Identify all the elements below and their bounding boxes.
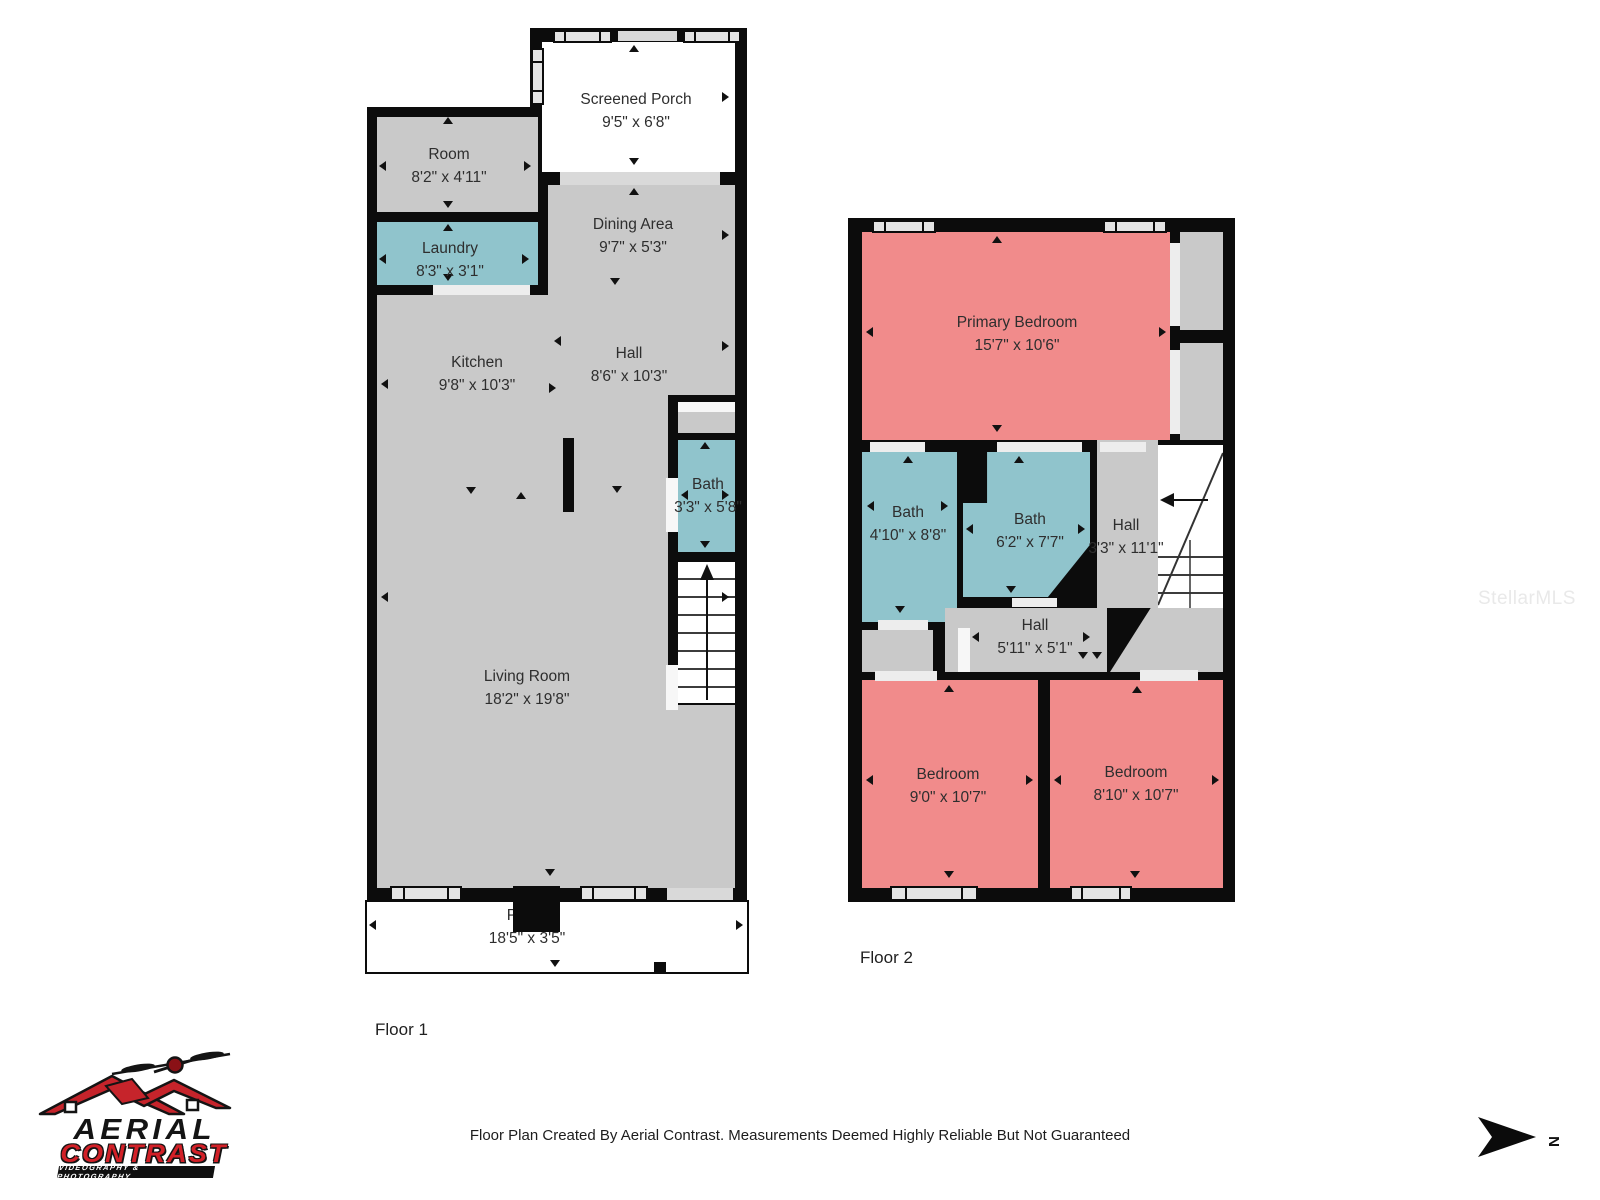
dimension-arrow-icon (549, 383, 556, 393)
door-opening-bedroom-right (1140, 670, 1198, 681)
dimension-arrow-icon (516, 492, 526, 499)
dimension-arrow-icon (722, 341, 729, 351)
dimension-arrow-icon (722, 92, 729, 102)
room-label-hall-lower: Hall 5'11" x 5'1" (997, 614, 1072, 661)
room-label-room: Room 8'2" x 4'11" (411, 143, 486, 190)
logo-tagline-bar: VIDEOGRAPHY & PHOTOGRAPHY (57, 1166, 215, 1178)
window (580, 886, 648, 901)
dimension-arrow-icon (629, 45, 639, 52)
dimension-arrow-icon (524, 161, 531, 171)
dimension-arrow-icon (443, 224, 453, 231)
floor2-tag: Floor 2 (860, 948, 913, 968)
compass-n-label: N (1545, 1136, 1562, 1147)
dimension-arrow-icon (1092, 652, 1102, 659)
room-label-bath-mid: Bath 6'2" x 7'7" (996, 508, 1064, 555)
room-label-laundry: Laundry 8'3" x 3'1" (416, 237, 484, 284)
window (553, 30, 612, 43)
door-opening-bedroom-left (875, 671, 937, 681)
room-label-dining: Dining Area 9'7" x 5'3" (593, 213, 673, 260)
room-label-bedroom-left: Bedroom 9'0" x 10'7" (910, 763, 986, 810)
floor1-tag: Floor 1 (375, 1020, 428, 1040)
door-opening-laundry (433, 285, 530, 295)
dimension-arrow-icon (1014, 456, 1024, 463)
dimension-arrow-icon (972, 632, 979, 642)
dimension-arrow-icon (466, 487, 476, 494)
dimension-arrow-icon (1212, 775, 1219, 785)
dimension-arrow-icon (1054, 775, 1061, 785)
dimension-arrow-icon (895, 606, 905, 613)
hall-left-strip (862, 630, 933, 672)
slider-door (667, 888, 733, 900)
dimension-arrow-icon (1026, 775, 1033, 785)
room-label-screened-porch: Screened Porch 9'5" x 6'8" (580, 88, 691, 135)
north-arrow-icon (1478, 1113, 1542, 1165)
dimension-arrow-icon (992, 236, 1002, 243)
room-label-hall1: Hall 8'6" x 10'3" (591, 342, 667, 389)
mls-watermark: StellarMLS (1478, 588, 1576, 610)
stairs-up-arrow-icon (678, 562, 735, 703)
dimension-arrow-icon (629, 158, 639, 165)
dimension-arrow-icon (722, 592, 729, 602)
logo-tagline-text: VIDEOGRAPHY & PHOTOGRAPHY (56, 1163, 215, 1181)
dimension-arrow-icon (903, 456, 913, 463)
door-opening-bath-left-lower (878, 620, 928, 630)
dimension-arrow-icon (381, 379, 388, 389)
window (390, 886, 462, 901)
window (872, 220, 936, 233)
dimension-arrow-icon (1078, 524, 1085, 534)
closet-upper (1180, 232, 1223, 330)
dimension-arrow-icon (554, 336, 561, 346)
room-label-living: Living Room 18'2" x 19'8" (484, 665, 570, 712)
window (1103, 220, 1167, 233)
dimension-arrow-icon (612, 486, 622, 493)
room-living-right (668, 705, 735, 888)
room-label-primary: Primary Bedroom 15'7" x 10'6" (957, 311, 1078, 358)
dimension-arrow-icon (866, 327, 873, 337)
dimension-arrow-icon (545, 869, 555, 876)
stairs-floor2-lines (1158, 445, 1223, 608)
window (683, 30, 741, 43)
porch-screen-sill (618, 31, 677, 41)
dimension-arrow-icon (629, 188, 639, 195)
entry-step-block (513, 886, 560, 932)
closet-door (1170, 243, 1180, 326)
dimension-arrow-icon (992, 425, 1002, 432)
dimension-arrow-icon (700, 541, 710, 548)
window (1070, 886, 1132, 901)
door-opening-bath-mid (997, 442, 1082, 452)
dimension-arrow-icon (443, 201, 453, 208)
dimension-arrow-icon (1159, 327, 1166, 337)
door-opening-bath1 (678, 402, 735, 412)
closet-door (1170, 350, 1180, 434)
porch-post (654, 962, 666, 974)
porch-dining-sill (560, 172, 720, 185)
door-opening-bath-mid-lower (1012, 598, 1057, 607)
window (890, 886, 978, 901)
dimension-arrow-icon (1130, 871, 1140, 878)
dimension-arrow-icon (1083, 632, 1090, 642)
dimension-arrow-icon (379, 161, 386, 171)
dimension-arrow-icon (722, 230, 729, 240)
logo-roof-drone-icon (34, 1044, 238, 1116)
dimension-arrow-icon (381, 592, 388, 602)
dimension-arrow-icon (443, 117, 453, 124)
dimension-arrow-icon (944, 685, 954, 692)
dimension-arrow-icon (1132, 686, 1142, 693)
dimension-arrow-icon (1006, 586, 1016, 593)
door-opening-primary (1100, 442, 1146, 452)
dimension-arrow-icon (866, 775, 873, 785)
room-label-bedroom-right: Bedroom 8'10" x 10'7" (1093, 761, 1178, 808)
room-label-kitchen: Kitchen 9'8" x 10'3" (439, 351, 515, 398)
dimension-arrow-icon (550, 960, 560, 967)
dimension-arrow-icon (610, 278, 620, 285)
floor-plan-canvas: Screened Porch 9'5" x 6'8" Room 8'2" x 4… (0, 0, 1600, 1200)
room-label-bath-left: Bath 4'10" x 8'8" (870, 501, 946, 548)
dimension-arrow-icon (522, 254, 529, 264)
closet-lower (1180, 343, 1223, 440)
dimension-arrow-icon (379, 254, 386, 264)
kitchen-island-wall (563, 438, 574, 512)
room-label-bath1: Bath 3'3" x 5'8" (674, 473, 742, 520)
bath1-vestibule (678, 412, 735, 433)
dimension-arrow-icon (736, 920, 743, 930)
dimension-arrow-icon (700, 442, 710, 449)
dimension-arrow-icon (369, 920, 376, 930)
aerial-contrast-logo: AERIAL CONTRAST VIDEOGRAPHY & PHOTOGRAPH… (34, 1044, 238, 1174)
window (531, 48, 544, 105)
dimension-arrow-icon (1078, 652, 1088, 659)
dimension-arrow-icon (944, 871, 954, 878)
door-opening-bath-left (870, 442, 925, 452)
door-leaf-hall (958, 628, 970, 672)
room-label-hall-upper: Hall 3'3" x 11'1" (1088, 514, 1163, 561)
dimension-arrow-icon (966, 524, 973, 534)
stairs-landing-floor1 (666, 665, 678, 710)
